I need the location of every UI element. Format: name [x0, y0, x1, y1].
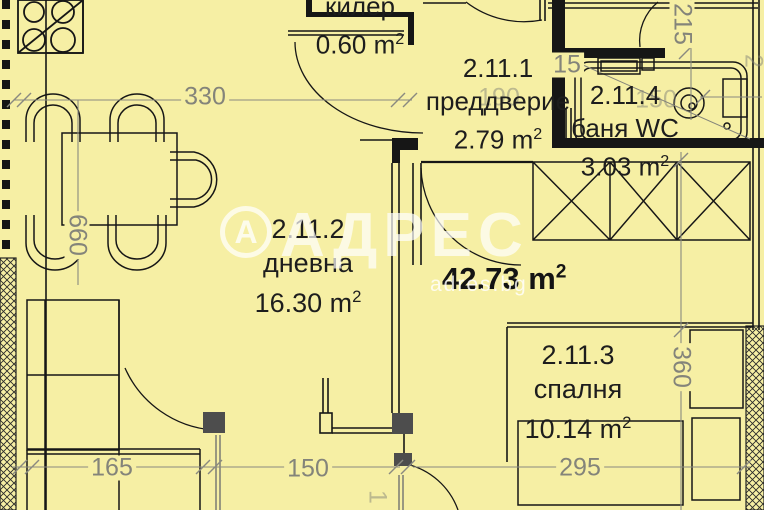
bedroom-balcony-door-arc [406, 464, 458, 510]
room-area: 10.14 m2 [525, 406, 632, 446]
dim-165: 165 [88, 456, 136, 481]
room-code: 2.11.4 [571, 79, 679, 112]
room-name: спалня [525, 372, 632, 406]
watermark-site: adres.bg [430, 273, 528, 297]
room-name: преддверие [426, 85, 570, 118]
room-name: баня WC [571, 112, 679, 145]
dim-edge-right: 2 [741, 51, 764, 71]
dim-295: 295 [556, 456, 604, 481]
room-area: 16.30 m2 [255, 280, 362, 320]
room-name: килер [316, 0, 404, 23]
dim-215: 215 [670, 0, 695, 48]
stove-icon [18, 0, 83, 53]
entrance-door-arc [466, 2, 542, 22]
room-area: 2.79 m2 [426, 118, 570, 157]
room-label-bedroom: 2.11.3 спалня 10.14 m2 [525, 338, 632, 446]
room-code: 2.11.3 [525, 338, 632, 372]
dim-660: 660 [65, 211, 90, 259]
room-label-hall: 2.11.1 преддверие 2.79 m2 [426, 52, 570, 157]
adres-logo-icon: А [220, 206, 272, 258]
dim-150: 150 [284, 457, 332, 482]
hatched-wall-right [746, 326, 764, 510]
dim-360: 360 [669, 343, 694, 391]
room-label-bath: 2.11.4 баня WC 3.03 m2 [571, 79, 679, 184]
living-balcony-door-arc [125, 368, 213, 430]
dim-edge-bottom: 1 [365, 487, 390, 507]
room-label-kiler: килер 0.60 m2 [316, 0, 404, 62]
dining-table-icon [26, 94, 217, 270]
hatched-wall-left [0, 258, 16, 510]
room-area: 0.60 m2 [316, 23, 404, 62]
dim-330: 330 [181, 85, 229, 110]
watermark-brand: АДРЕС [280, 200, 529, 271]
room-area: 3.03 m2 [571, 145, 679, 184]
nightstand-icon [690, 330, 743, 500]
bath-sink-icon [598, 58, 654, 74]
floor-plan: килер 0.60 m2 2.11.1 преддверие 2.79 m2 … [0, 0, 764, 510]
room-code: 2.11.1 [426, 52, 570, 85]
